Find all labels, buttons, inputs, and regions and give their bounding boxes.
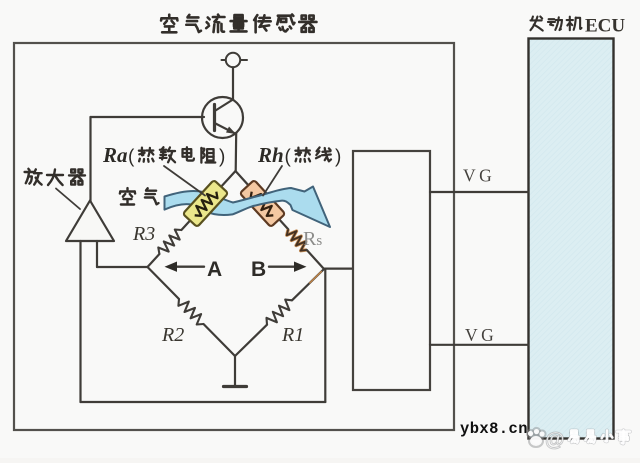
svg-text:VG: VG: [465, 325, 497, 345]
svg-text:@: @: [545, 429, 565, 451]
svg-text:VG: VG: [463, 166, 495, 186]
svg-text:(: (: [285, 147, 292, 168]
svg-text:R3: R3: [132, 223, 155, 245]
svg-text:ECU: ECU: [585, 16, 625, 37]
svg-text:R1: R1: [281, 324, 304, 346]
svg-text:A: A: [207, 258, 222, 281]
svg-text:Rh: Rh: [257, 143, 284, 167]
svg-text:Ra: Ra: [102, 143, 128, 167]
svg-text:R2: R2: [161, 324, 184, 346]
svg-text:): ): [335, 147, 341, 168]
svg-text:B: B: [251, 258, 266, 281]
svg-text:ybx8.cn: ybx8.cn: [460, 420, 528, 438]
svg-text:(: (: [128, 147, 135, 168]
svg-text:): ): [219, 147, 225, 168]
